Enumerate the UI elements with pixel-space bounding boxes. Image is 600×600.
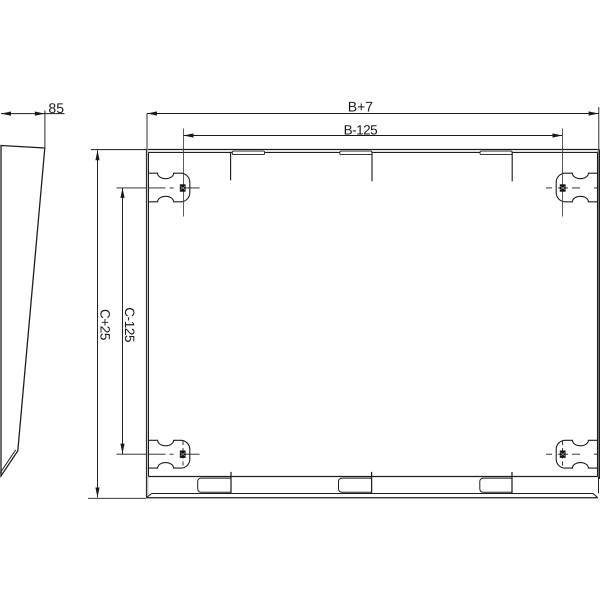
svg-text:85: 85 (48, 100, 64, 116)
svg-text:B-125: B-125 (344, 122, 378, 137)
svg-text:C-125: C-125 (122, 307, 137, 342)
svg-text:C+25: C+25 (97, 309, 112, 340)
svg-text:B+7: B+7 (348, 98, 374, 114)
